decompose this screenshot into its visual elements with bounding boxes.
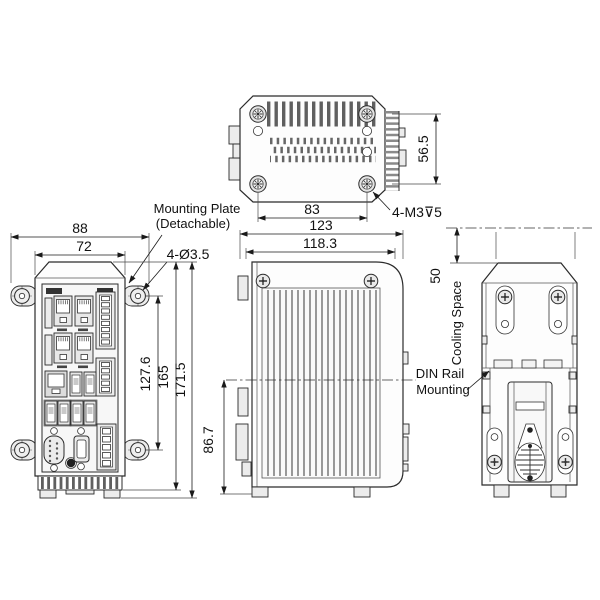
din-rail-label2: Mounting xyxy=(416,382,469,397)
side-screw xyxy=(256,274,270,288)
power-terminal xyxy=(97,424,116,470)
lan-port xyxy=(75,333,93,363)
dim-cooling-clearance: 50 xyxy=(427,268,443,284)
usb-port xyxy=(71,401,83,425)
dim-body-height: 165 xyxy=(155,365,171,389)
din-rail-label: DIN Rail xyxy=(416,366,465,381)
top-screw xyxy=(250,176,266,192)
mounting-plate-note: Mounting Plate xyxy=(154,201,241,216)
lan-port xyxy=(75,296,93,326)
dim-hole-pitch: 127.6 xyxy=(137,356,153,391)
top-view xyxy=(229,96,406,202)
front-view xyxy=(11,262,149,498)
rear-screw xyxy=(559,455,573,469)
foot xyxy=(104,490,120,498)
top-view-left-bracket xyxy=(229,126,240,144)
side-screw xyxy=(364,274,378,288)
rear-screw xyxy=(551,290,565,304)
lan-port xyxy=(54,296,72,326)
din-clip-profile xyxy=(236,424,248,460)
technical-drawing: 83 56.5 4-M3⊽5 xyxy=(0,0,600,600)
dim-top-screw-span: 83 xyxy=(304,201,320,217)
dim-top-screw-depth: 56.5 xyxy=(415,135,431,162)
usb-port xyxy=(84,372,96,396)
dim-overall-height: 171.5 xyxy=(172,362,188,397)
top-screw xyxy=(359,176,375,192)
usb-port xyxy=(84,401,96,425)
usb-port xyxy=(70,372,82,396)
cooling-space-label: Cooling Space xyxy=(449,281,464,366)
dim-body-depth: 118.3 xyxy=(303,235,337,251)
dim-overall-depth: 123 xyxy=(309,217,333,233)
top-screw xyxy=(359,106,375,122)
foot xyxy=(40,490,56,498)
dim-front-outer-width: 88 xyxy=(72,220,88,236)
panel-label xyxy=(46,288,62,294)
lan-port xyxy=(54,333,72,363)
rear-view: 50 Cooling Space xyxy=(416,228,592,497)
rear-screw xyxy=(488,455,502,469)
dim-lower-height: 86.7 xyxy=(200,426,216,453)
mounting-plate-note2: (Detachable) xyxy=(156,216,230,231)
din-rail-clip xyxy=(508,382,552,482)
terminal-block xyxy=(96,292,115,349)
db9-side-profile xyxy=(403,437,408,461)
usb-port xyxy=(45,401,57,425)
foot xyxy=(252,487,268,497)
top-screw xyxy=(250,106,266,122)
terminal-block xyxy=(96,358,115,396)
rear-screw xyxy=(498,290,512,304)
foot xyxy=(354,487,370,497)
front-holes-note: 4-Ø3.5 xyxy=(167,246,210,262)
dim-front-body-width: 72 xyxy=(76,238,92,254)
side-view xyxy=(226,262,416,497)
foot xyxy=(551,485,566,497)
top-screw-spec: 4-M3⊽5 xyxy=(392,204,442,220)
foot xyxy=(494,485,509,497)
usb-port xyxy=(58,401,70,425)
